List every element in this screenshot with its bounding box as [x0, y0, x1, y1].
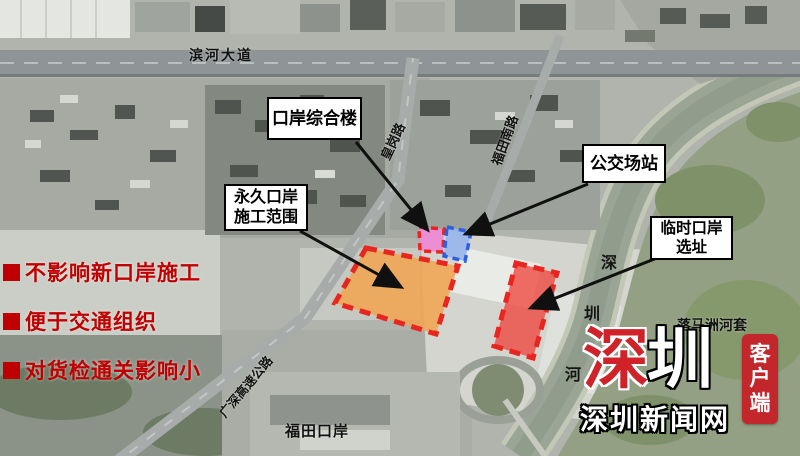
callout-permanent-port-line1: 永久口岸: [234, 188, 298, 208]
square-bullet-icon: [3, 264, 20, 281]
client-badge-char2: 户: [750, 367, 771, 390]
key-point-3: 对货检通关影响小: [3, 355, 201, 385]
client-badge-char3: 端: [750, 392, 771, 415]
sznews-logo: 深圳: [583, 322, 711, 398]
arrow-bus-station: [468, 184, 588, 233]
square-bullet-icon: [3, 313, 20, 330]
client-app-badge: 客 户 端: [742, 334, 778, 424]
port-building-zone: [419, 227, 444, 252]
key-point-2: 便于交通组织: [3, 306, 201, 336]
callout-port-complex-building: 口岸综合楼: [267, 97, 362, 140]
key-point-3-text: 对货检通关影响小: [25, 355, 201, 385]
label-shenzhen-river-char3: 河: [565, 361, 581, 385]
client-badge-char1: 客: [750, 343, 771, 366]
label-binhe-avenue: 滨河大道: [189, 45, 253, 65]
news-map-image: 滨河大道 皇岗路 福田南路 广深高速公路 福田口岸 落马洲河套 深 圳 河 口岸…: [0, 0, 800, 456]
label-futian-port: 福田口岸: [285, 420, 349, 441]
key-point-1: 不影响新口岸施工: [3, 257, 201, 287]
callout-temporary-port-line1: 临时口岸: [660, 219, 722, 238]
label-shenzhen-river-char2: 圳: [584, 300, 600, 324]
temporary-port-zone: [494, 263, 557, 358]
label-shenzhen-river-char1: 深: [601, 249, 617, 273]
key-point-1-text: 不影响新口岸施工: [25, 257, 201, 287]
square-bullet-icon: [3, 362, 20, 379]
callout-bus-station-label: 公交场站: [590, 153, 658, 174]
callout-permanent-port-line2: 施工范围: [234, 208, 298, 228]
key-point-2-text: 便于交通组织: [25, 306, 157, 336]
sznews-site-name: 深圳新闻网: [580, 398, 730, 438]
callout-permanent-port: 永久口岸 施工范围: [224, 184, 308, 231]
callout-port-complex-building-label: 口岸综合楼: [272, 108, 357, 129]
key-points-list: 不影响新口岸施工 便于交通组织 对货检通关影响小: [3, 257, 201, 385]
sznews-logo-char1: 深: [583, 322, 647, 396]
callout-bus-station: 公交场站: [582, 144, 666, 183]
bus-station-zone: [444, 227, 471, 261]
callout-temporary-port: 临时口岸 选址: [650, 216, 733, 260]
callout-temporary-port-line2: 选址: [676, 238, 707, 257]
sznews-logo-char2: 圳: [647, 322, 711, 396]
